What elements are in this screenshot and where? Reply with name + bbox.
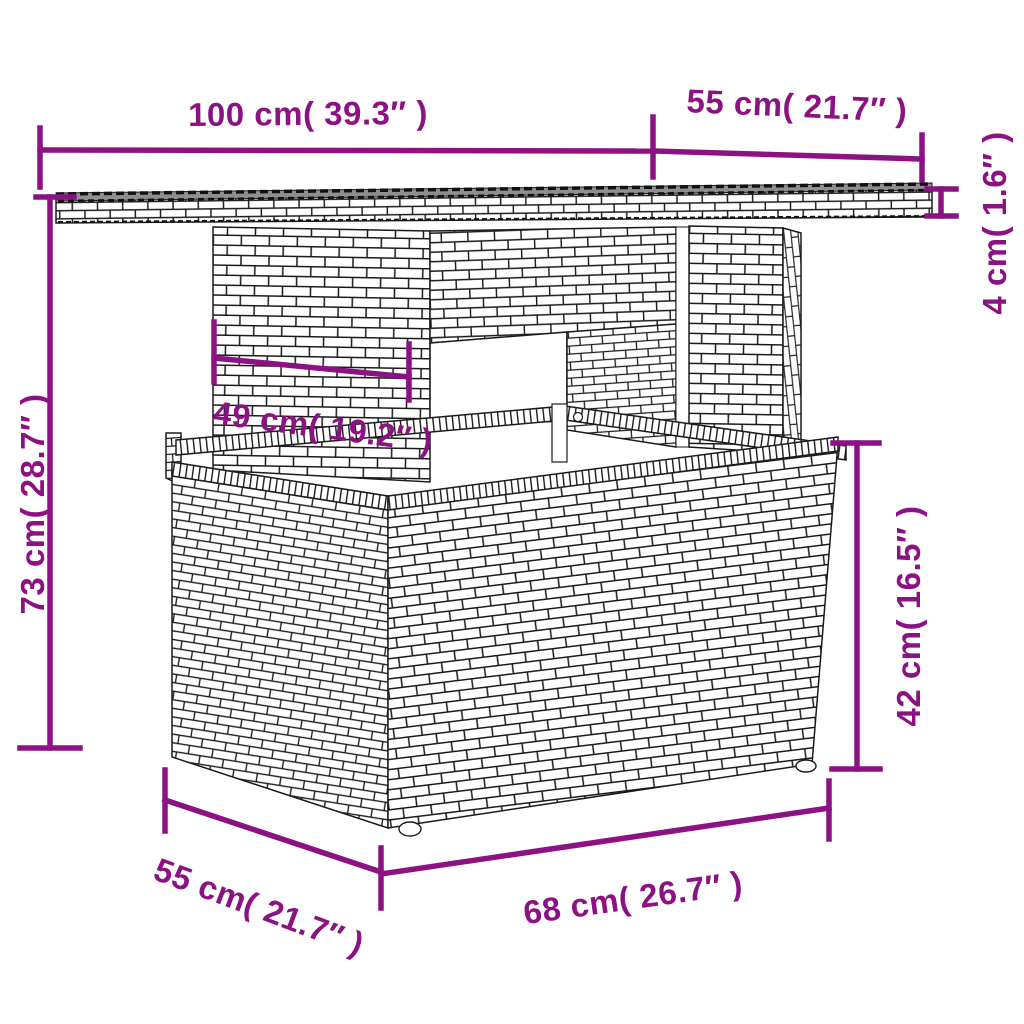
pedestal-top-band — [430, 227, 676, 343]
pedestal-right-column — [689, 226, 783, 453]
bracket-post — [552, 404, 567, 462]
dim-label-top-thickness: 4 cm( 1.6″ ) — [976, 131, 1014, 314]
dim-label-total-height: 73 cm( 28.7″ ) — [14, 394, 52, 615]
tabletop — [56, 183, 932, 223]
table-foot — [399, 822, 421, 836]
base-box — [172, 437, 838, 836]
dim-base-height-lines — [832, 443, 880, 769]
dim-label-base-height: 42 cm( 16.5″ ) — [890, 506, 928, 727]
pedestal-right-side — [783, 228, 801, 453]
dimension-diagram: 100 cm( 39.3″ ) 55 cm( 21.7″ ) 4 cm( 1.6… — [0, 0, 1024, 1024]
screw-fitting — [574, 413, 583, 422]
dim-top-depth-lines — [653, 135, 922, 180]
table-foot — [796, 760, 816, 772]
dim-label-top-width: 100 cm( 39.3″ ) — [188, 94, 428, 134]
base-left-face — [172, 468, 388, 828]
pedestal-seam — [676, 227, 689, 447]
